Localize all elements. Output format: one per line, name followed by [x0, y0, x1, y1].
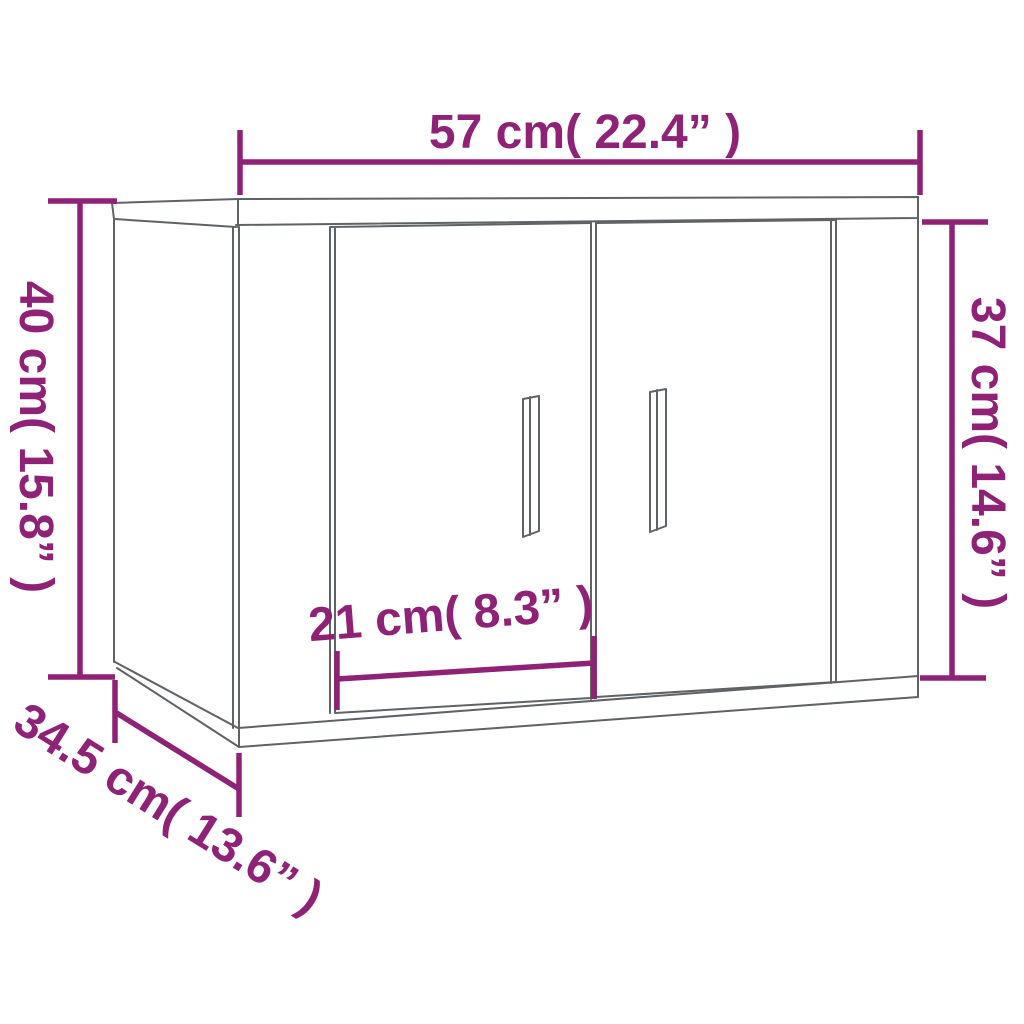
label-right-height: 37 cm( 14.6” ) — [961, 297, 1014, 609]
cabinet-drawing — [112, 197, 918, 747]
label-depth: 34.5 cm( 13.6” ) — [5, 693, 332, 925]
dimension-labels: 57 cm( 22.4” ) 40 cm( 15.8” ) 37 cm( 14.… — [5, 106, 1014, 925]
cabinet-dimension-diagram: 57 cm( 22.4” ) 40 cm( 15.8” ) 37 cm( 14.… — [0, 0, 1024, 1024]
cabinet-top-panel-edge — [112, 197, 918, 227]
label-top-width: 57 cm( 22.4” ) — [429, 106, 741, 159]
dim-line-door-width — [337, 636, 594, 710]
cabinet-left-side-panel — [114, 219, 239, 747]
diagram-canvas: 57 cm( 22.4” ) 40 cm( 15.8” ) 37 cm( 14.… — [0, 0, 1024, 1024]
label-door-width: 21 cm( 8.3” ) — [306, 577, 595, 652]
right-door-handle — [650, 389, 666, 532]
left-door-handle — [523, 396, 539, 537]
label-left-height: 40 cm( 15.8” ) — [9, 281, 62, 593]
right-door-outline — [596, 220, 836, 697]
cabinet-bottom-panel-edge — [238, 676, 918, 747]
